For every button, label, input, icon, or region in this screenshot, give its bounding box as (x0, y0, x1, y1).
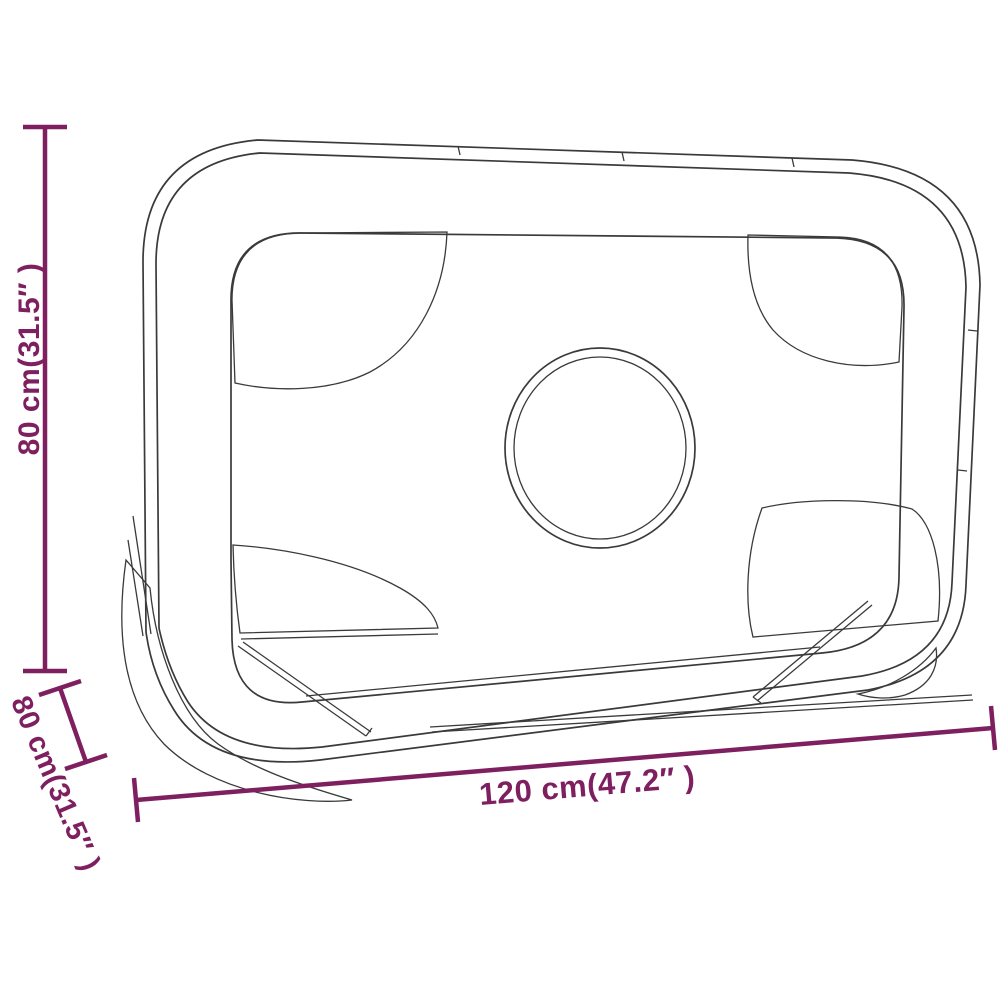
net-opening-top-right (748, 235, 902, 365)
frame-stitch-marks (458, 146, 977, 471)
sheet-bottom-hem (306, 647, 820, 696)
width-dimension: 120 cm(47.2″ ) (134, 706, 995, 822)
center-ring-inner (514, 357, 686, 539)
width-dimension-cap-left (134, 778, 138, 822)
net-opening-top-left (232, 232, 447, 389)
height-dimension: 80 cm(31.5″ ) (13, 127, 67, 671)
goal-frame-inner-line (156, 153, 966, 749)
center-target-opening (505, 348, 695, 548)
depth-dimension-label: 80 cm(31.5″ ) (4, 691, 106, 875)
depth-dimension: 80 cm(31.5″ ) (4, 681, 107, 876)
goal-frame (128, 140, 980, 762)
product-dimension-diagram: 80 cm(31.5″ ) 80 cm(31.5″ ) 120 cm(47.2″… (0, 0, 1000, 1000)
diagonal-brace-left (238, 642, 372, 736)
ground-bar (430, 695, 973, 732)
width-dimension-cap-right (991, 706, 995, 750)
net-opening-bottom-right (748, 501, 940, 637)
depth-dimension-line (60, 688, 86, 762)
net-opening-bottom-left (233, 545, 438, 633)
goal-frame-outer-line (143, 140, 980, 762)
exterior-net-bottom-left (122, 560, 352, 801)
base-structure (430, 695, 973, 732)
net-opening-bottom-left-hem (241, 634, 438, 639)
net-openings (232, 232, 940, 639)
center-ring-outer (505, 348, 695, 548)
height-dimension-label: 80 cm(31.5″ ) (13, 263, 46, 456)
goal-dimension-drawing: 80 cm(31.5″ ) 80 cm(31.5″ ) 120 cm(47.2″… (0, 0, 1000, 1000)
